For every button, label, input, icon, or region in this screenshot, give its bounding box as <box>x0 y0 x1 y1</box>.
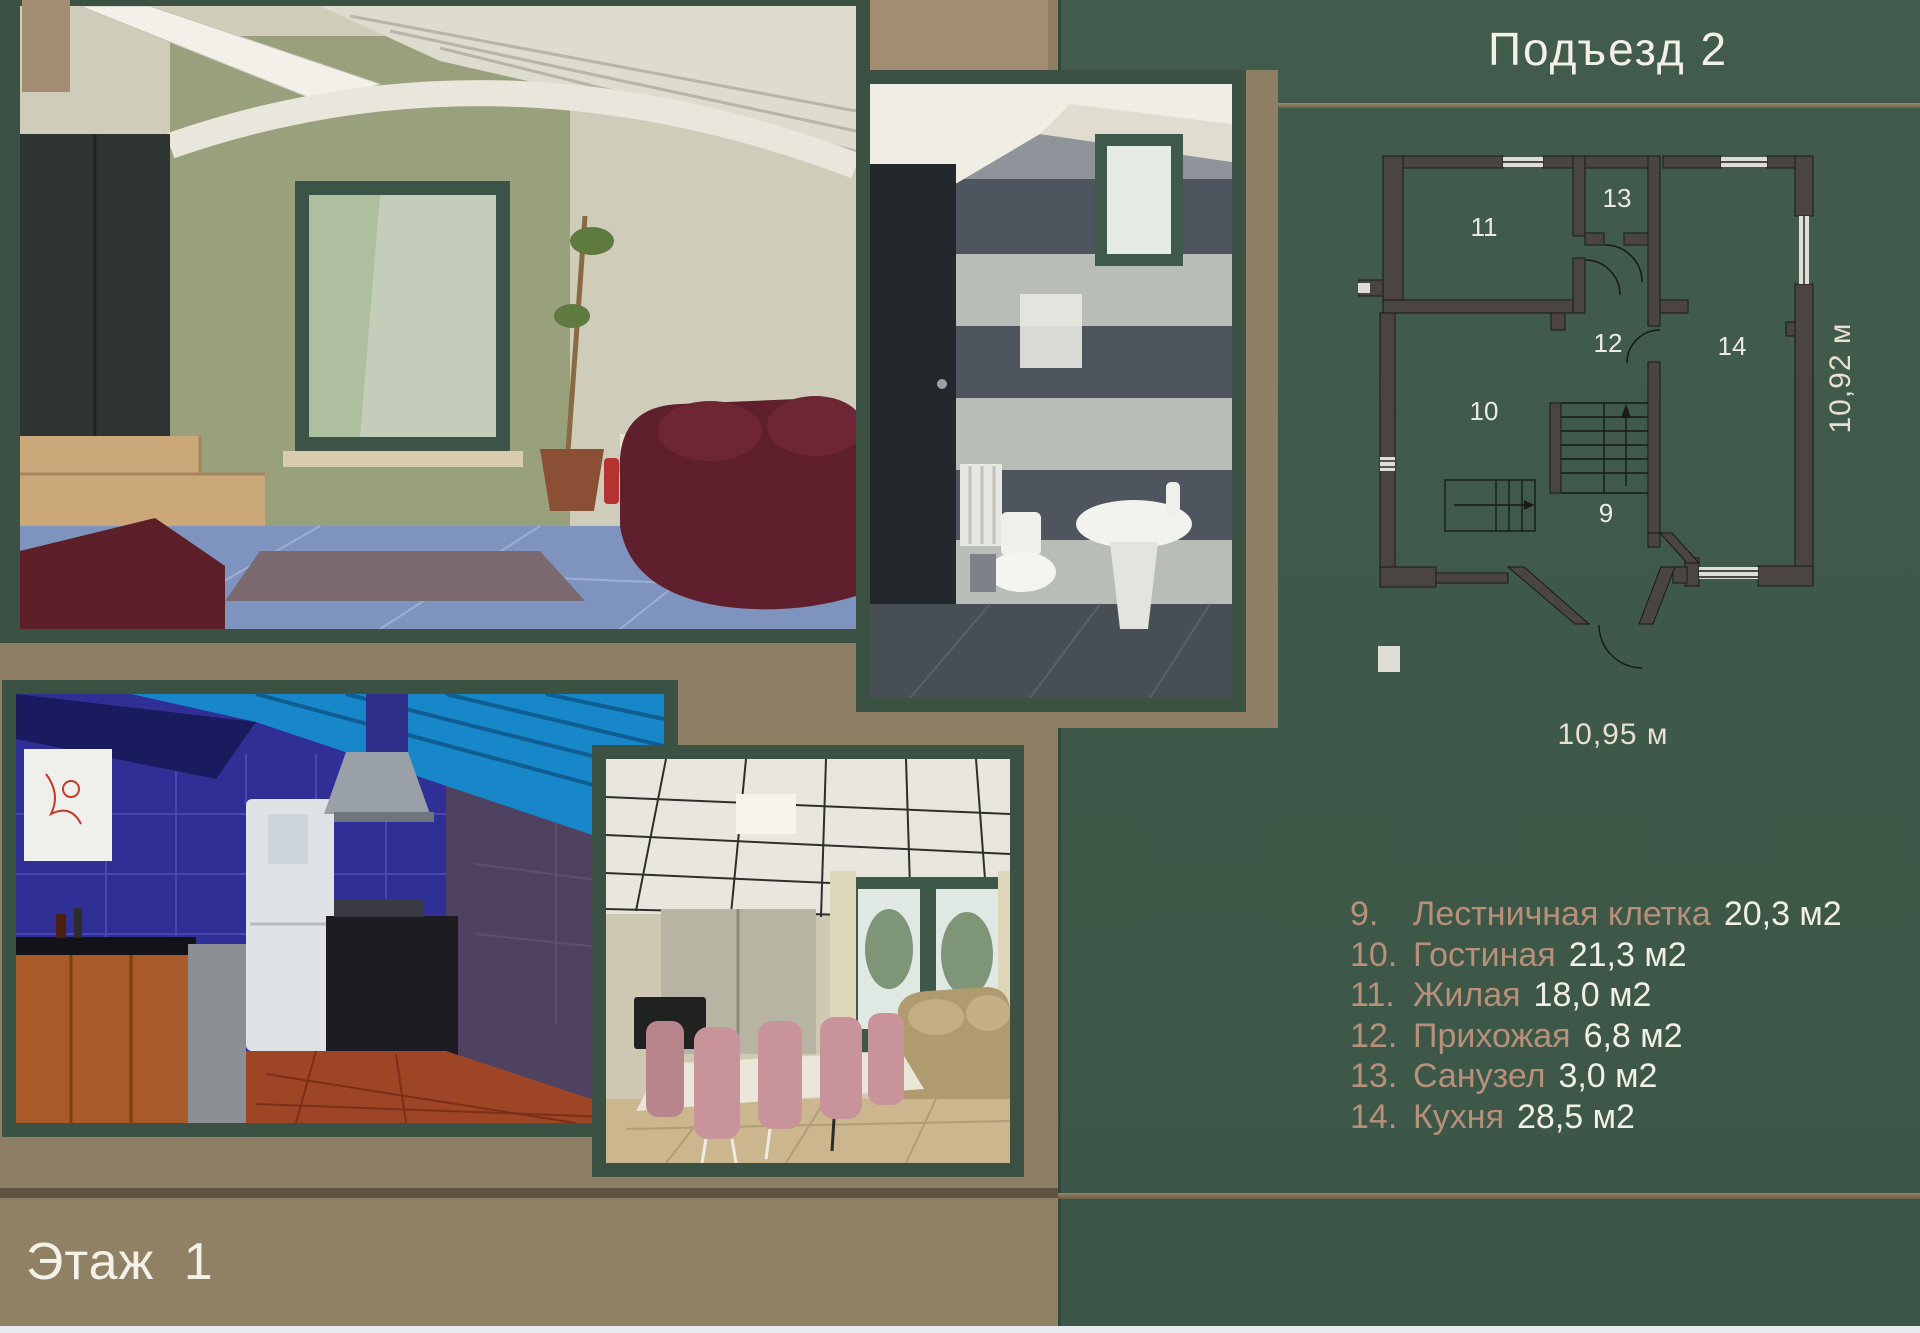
legend-room-area: 18,0 м2 <box>1534 975 1652 1016</box>
legend-number: 9. <box>1350 894 1413 935</box>
legend-room-area: 3,0 м2 <box>1558 1056 1657 1097</box>
plan-width-dimension: 10,95 м <box>1557 718 1668 751</box>
legend-room-name: Прихожая <box>1413 1016 1571 1057</box>
legend-number: 11. <box>1350 975 1413 1016</box>
legend-item-11: 11.Жилая18,0 м2 <box>1350 975 1842 1016</box>
room-number-labels: 91011121314 <box>1470 183 1747 528</box>
legend-number: 13. <box>1350 1056 1413 1097</box>
legend-room-name: Гостиная <box>1413 935 1556 976</box>
room-area-legend: 9.Лестничная клетка20,3 м210.Гостиная21,… <box>1350 894 1842 1137</box>
tan-decor-notch <box>22 0 70 92</box>
bottom-edge-strip <box>0 1326 1920 1333</box>
legend-room-area: 20,3 м2 <box>1724 894 1842 935</box>
plan-height-dimension: 10,92 м <box>1824 322 1857 433</box>
floor-plan-diagram: 91011121314 10,95 м 10,92 м <box>1358 148 1918 760</box>
legend-room-area: 21,3 м2 <box>1569 935 1687 976</box>
tan-decor-block-top <box>868 0 1048 78</box>
bottom-divider-line <box>1058 1193 1920 1199</box>
legend-item-14: 14.Кухня28,5 м2 <box>1350 1097 1842 1138</box>
bottom-bar-shadow <box>0 1188 1058 1198</box>
living-room-photo-image <box>20 6 856 629</box>
tan-margin-bottom <box>1058 712 1278 728</box>
legend-room-name: Кухня <box>1413 1097 1504 1138</box>
room-label-13: 13 <box>1603 183 1632 213</box>
floor-label: Этаж 1 <box>26 1232 214 1292</box>
bathroom-photo-image <box>870 84 1232 698</box>
room-label-11: 11 <box>1471 212 1498 242</box>
legend-room-area: 6,8 м2 <box>1584 1016 1683 1057</box>
legend-room-name: Лестничная клетка <box>1413 894 1711 935</box>
dining-room-photo-image <box>606 759 1010 1163</box>
dining-room-photo <box>592 745 1024 1177</box>
room-label-14: 14 <box>1718 331 1747 361</box>
floor-plan-walls <box>1358 156 1813 624</box>
legend-item-13: 13.Санузел3,0 м2 <box>1350 1056 1842 1097</box>
presentation-slide: Подъезд 2 <box>0 0 1920 1333</box>
legend-item-9: 9.Лестничная клетка20,3 м2 <box>1350 894 1842 935</box>
room-label-12: 12 <box>1594 328 1623 358</box>
kitchen-photo-image <box>16 694 664 1123</box>
bathroom-photo <box>856 70 1246 712</box>
room-label-9: 9 <box>1599 498 1613 528</box>
tan-margin-right <box>1246 70 1278 728</box>
room-label-10: 10 <box>1470 396 1499 426</box>
kitchen-photo <box>2 680 678 1137</box>
legend-room-name: Санузел <box>1413 1056 1545 1097</box>
living-room-photo <box>0 0 870 643</box>
legend-room-name: Жилая <box>1413 975 1521 1016</box>
legend-room-area: 28,5 м2 <box>1517 1097 1635 1138</box>
page-title: Подъезд 2 <box>1358 22 1858 76</box>
legend-number: 10. <box>1350 935 1413 976</box>
legend-number: 12. <box>1350 1016 1413 1057</box>
legend-number: 14. <box>1350 1097 1413 1138</box>
legend-item-10: 10.Гостиная21,3 м2 <box>1350 935 1842 976</box>
legend-item-12: 12.Прихожая6,8 м2 <box>1350 1016 1842 1057</box>
